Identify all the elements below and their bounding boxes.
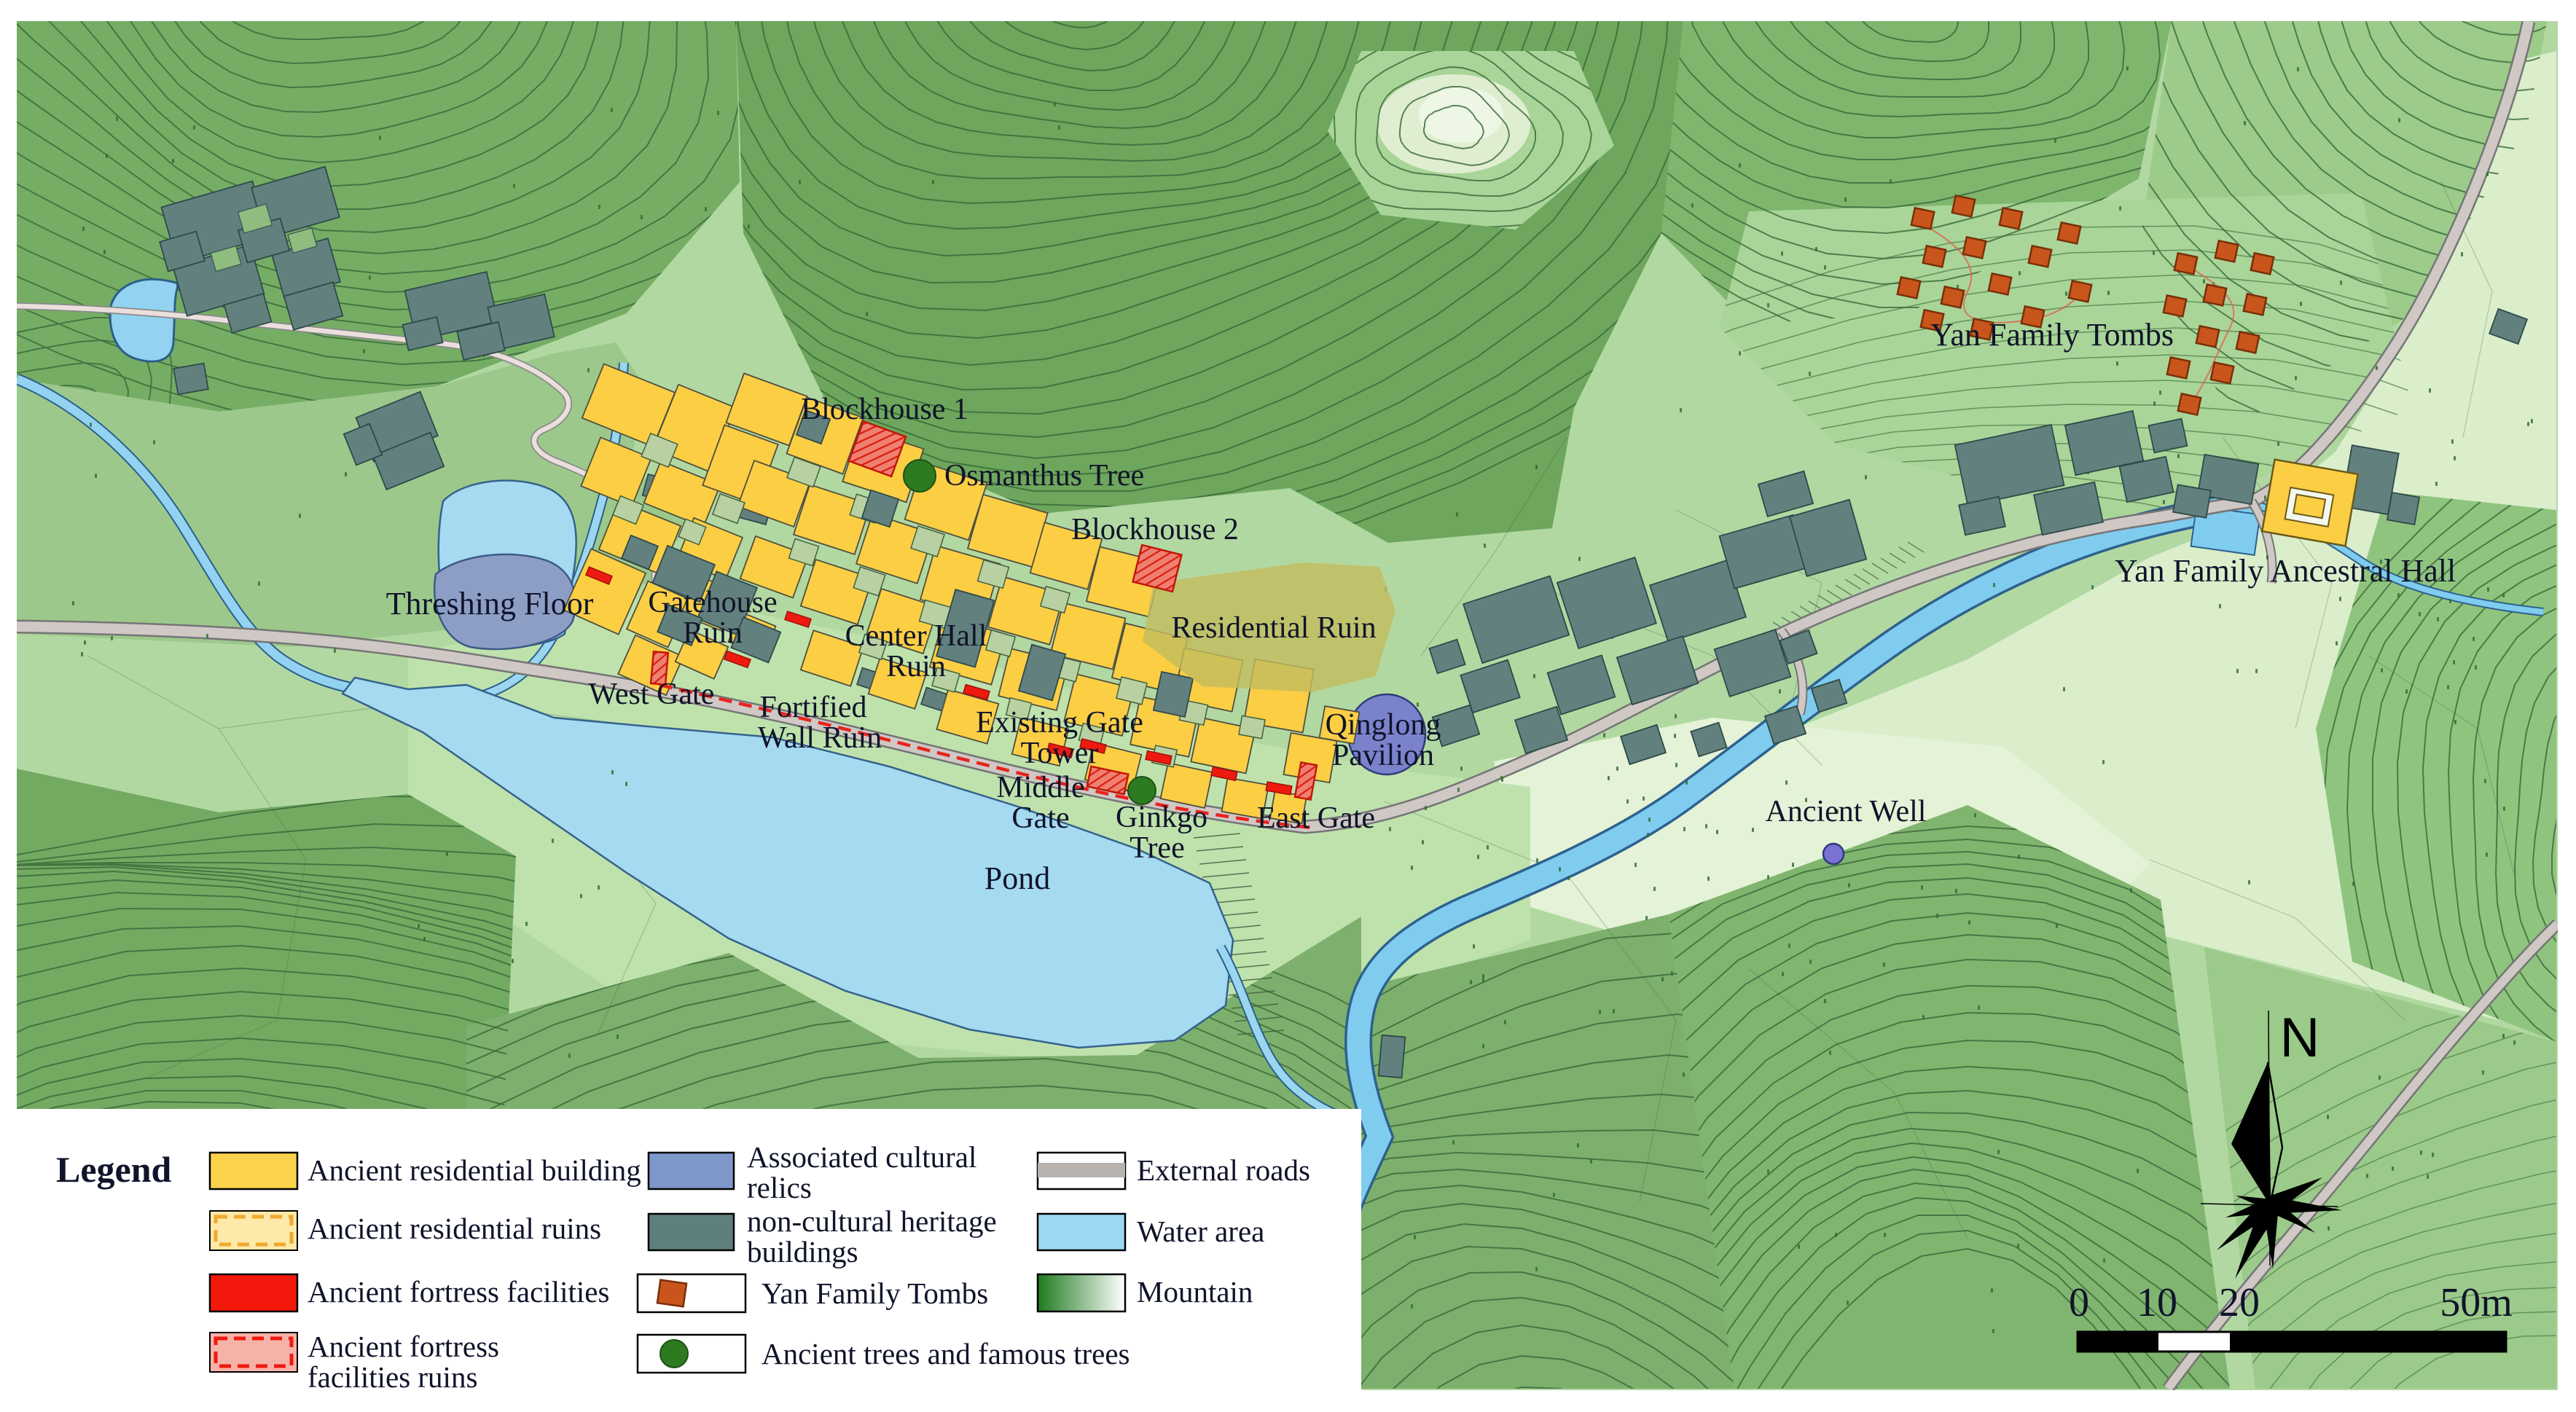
svg-text:10: 10 — [2137, 1280, 2177, 1325]
svg-text:Yan Family Tombs: Yan Family Tombs — [1930, 317, 2174, 353]
svg-text:20: 20 — [2219, 1280, 2260, 1325]
svg-text:Ancient residential building: Ancient residential building — [308, 1153, 641, 1187]
svg-text:Pavilion: Pavilion — [1332, 739, 1434, 772]
svg-text:Threshing Floor: Threshing Floor — [386, 586, 594, 621]
svg-text:Yan Family Ancestral Hall: Yan Family Ancestral Hall — [2115, 553, 2456, 589]
svg-text:Blockhouse 1: Blockhouse 1 — [801, 393, 968, 426]
svg-text:Ginkgo: Ginkgo — [1116, 801, 1207, 834]
svg-text:N: N — [2280, 1007, 2320, 1069]
svg-text:Ancient fortress facilities: Ancient fortress facilities — [308, 1275, 609, 1309]
svg-text:Ancient Well: Ancient Well — [1766, 795, 1927, 828]
svg-text:Middle: Middle — [996, 771, 1084, 804]
svg-text:Center Hall: Center Hall — [845, 619, 987, 653]
svg-text:Legend: Legend — [56, 1149, 172, 1190]
svg-text:West Gate: West Gate — [589, 678, 715, 711]
svg-text:Osmanthus Tree: Osmanthus Tree — [944, 459, 1144, 493]
svg-text:Ruin: Ruin — [886, 650, 946, 683]
svg-text:Tree: Tree — [1130, 831, 1184, 865]
svg-text:Ancient residential ruins: Ancient residential ruins — [308, 1212, 601, 1245]
svg-text:50m: 50m — [2440, 1280, 2513, 1325]
svg-text:Ancient trees and famous trees: Ancient trees and famous trees — [762, 1337, 1130, 1370]
svg-text:Gate: Gate — [1011, 801, 1069, 835]
svg-text:Gatehouse: Gatehouse — [648, 586, 777, 619]
svg-text:Associated cultural: Associated cultural — [747, 1140, 976, 1174]
svg-text:Qinglong: Qinglong — [1326, 708, 1441, 742]
svg-text:Yan Family Tombs: Yan Family Tombs — [762, 1276, 988, 1310]
svg-text:Mountain: Mountain — [1137, 1275, 1253, 1309]
svg-text:Wall Ruin: Wall Ruin — [758, 721, 882, 755]
svg-text:facilities ruins: facilities ruins — [308, 1360, 477, 1394]
svg-text:Pond: Pond — [984, 860, 1050, 896]
svg-text:0: 0 — [2069, 1280, 2089, 1325]
svg-text:Ruin: Ruin — [683, 616, 743, 650]
svg-text:Residential Ruin: Residential Ruin — [1171, 611, 1376, 645]
svg-text:Ancient fortress: Ancient fortress — [308, 1330, 499, 1363]
svg-text:Existing Gate: Existing Gate — [976, 706, 1143, 740]
svg-text:relics: relics — [747, 1171, 812, 1204]
svg-text:Blockhouse 2: Blockhouse 2 — [1071, 513, 1239, 546]
svg-text:buildings: buildings — [747, 1235, 858, 1268]
svg-text:Tower: Tower — [1021, 737, 1099, 770]
svg-text:non-cultural heritage: non-cultural heritage — [747, 1204, 997, 1238]
svg-text:External roads: External roads — [1137, 1153, 1310, 1187]
svg-text:East Gate: East Gate — [1257, 801, 1375, 835]
svg-text:Water area: Water area — [1137, 1215, 1264, 1248]
svg-text:Fortified: Fortified — [760, 691, 867, 724]
